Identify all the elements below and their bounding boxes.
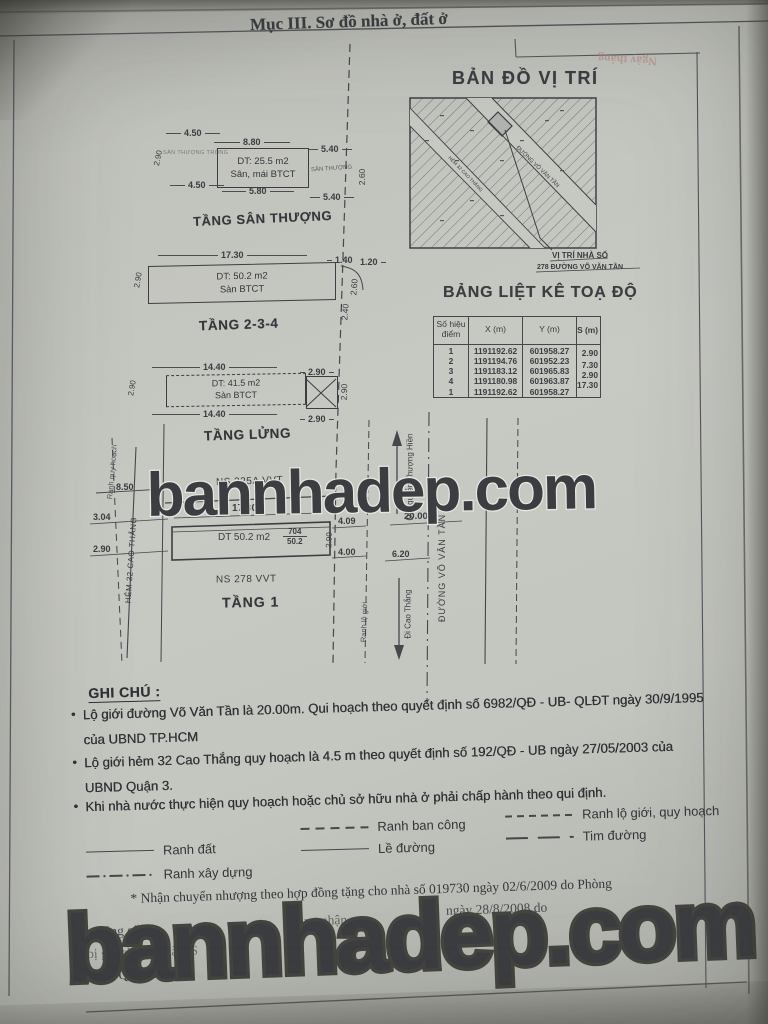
col-point: Số hiệu điểm 1 2 3 4 1 [434,317,468,397]
dim-value: 14.40 [203,362,226,372]
x-value: 1191180.98 [474,376,517,386]
note-1-line-1: Lộ giới đường Võ Văn Tần là 20.00m. Qui … [83,690,704,722]
s-value: 17.30 [577,380,598,390]
street-label: ĐƯỜNG VÕ VĂN TẦN [437,514,447,622]
solid-line-icon [86,849,154,852]
x-value: 1191192.62 [474,346,517,356]
dim-234-top: 17.30 [158,250,307,260]
house-number-top: NS 325A VVT [216,475,284,488]
dim-t1-width: 17.30 [232,503,257,514]
dim-mezz-bottom: 14.40 [152,409,277,419]
mezzanine-box: DT: 41.5 m2 Sàn BTCT [166,373,306,407]
footer-fragment: bị giá chứng nhà QS [87,943,198,962]
tang1-plan [90,412,518,704]
dim-value: 17.30 [221,250,244,260]
note-2-line-2: UBND Quận 3. [85,778,173,795]
scanned-document-page: ĐƯỜNG VÕ VĂN TẦN HẺM 32 CAO THẮNG VỊ TRÍ… [0,0,768,1024]
y-value: 601965.83 [530,366,570,376]
note-bullet: ● [71,710,76,719]
legend-label: Ranh lộ giới, quy hoạch [582,803,720,822]
legend-ranh-dat: Ranh đất [86,841,216,859]
col-y: Y (m) 601958.27 601952.23 601965.83 6019… [522,317,576,397]
point-id: 2 [449,356,454,366]
col-point-header-2: điểm [442,330,461,340]
footer-fragment: ngày 28/8/2008 do [446,900,548,919]
floor-234-box: DT: 50.2 m2 Sàn BTCT [148,262,336,304]
dim-t1-850: 8.50 [116,482,134,492]
mezzanine-material: Sàn BTCT [215,390,257,402]
parcel-number: 704 [288,527,301,536]
dim-value: 5.40 [321,144,339,154]
s-value: 2.90 [582,348,598,358]
x-value: 1191194.76 [474,356,517,366]
legend-label: Lề đường [378,839,435,855]
point-id: 1 [449,387,454,397]
parcel-area: 50.2 [283,536,307,546]
col-x-header: X (m) [485,325,506,335]
dim-value: 14.40 [203,409,226,419]
dash-dot-line-icon [87,873,155,877]
dim-roof-bottom-right: 5.40 [310,192,354,202]
dim-value: 5.80 [249,186,267,196]
legend-label: Tim đường [583,827,647,844]
south-arrow [394,578,404,660]
col-s-header: S (m) [577,326,598,336]
y-value: 601963.87 [530,376,570,386]
house-number-bottom: NS 278 VVT [216,573,277,585]
dim-value: 1.40 [335,255,353,265]
dim-t1-304: 3.04 [93,512,111,522]
dim-value: 2.90 [308,414,326,424]
map-title: BẢN ĐỒ VỊ TRÍ [452,68,599,89]
north-arrow [392,430,402,514]
mezzanine-label: TẦNG LỬNG [204,425,292,443]
footer-fragment: ôn chứng số [73,923,139,941]
y-value: 601958.27 [530,387,570,397]
dim-roof-right: 2.60 [357,169,367,186]
legend-label: Ranh ban công [377,817,466,834]
s-value: 2.90 [582,370,598,380]
col-x: X (m) 1191192.62 1191194.76 1191183.12 1… [468,317,522,397]
footer-note: * Nhận chuyển nhượng theo hợp đồng tặng … [60,863,763,995]
note-bullet: ● [72,758,77,767]
mezzanine-void-box [306,376,338,409]
dim-t1-409: 4.09 [338,516,356,526]
dim-234-r2: 1.20 [360,257,386,267]
dim-roof-top-right: 5.40 [308,144,352,154]
direction-south-label: Đi Cao Thắng [404,589,413,638]
legend-tim-duong: Tim đường [506,827,647,846]
legend-label: Ranh đất [163,841,216,857]
bleedthrough-stamp: Ngày tháng [598,50,658,68]
dim-value: 4.50 [188,180,206,190]
floor-234-area: DT: 50.2 m2 [216,269,267,283]
t1-parcel-fraction: 704 50.2 [283,527,307,546]
coordinate-table: Số hiệu điểm 1 2 3 4 1 X (m) 1191192.62 … [433,316,601,398]
note-1-line-2: của UBND TP.HCM [83,729,198,747]
legend-ranh-ban-cong: Ranh ban công [300,817,466,836]
footer-last-line: UBND Quận 3 cấp. [77,965,184,984]
roof-note-left: SÂN THƯỢNG TRỐNG [163,150,228,156]
coord-table-title: BẢNG LIỆT KÊ TOẠ ĐỘ [443,284,637,302]
footer-fragment: bằng nhận [291,912,347,930]
mezzanine-area: DT: 41.5 m2 [212,378,261,391]
dim-234-r3: 2.60 [348,278,359,295]
notes-title: GHI CHÚ : [88,683,161,703]
legend-le-duong: Lề đường [301,839,435,858]
y-value: 601958.27 [530,346,570,356]
roof-material: Sân, mái BTCT [231,168,296,181]
y-value: 601952.23 [530,356,570,366]
dim-value: 5.40 [323,192,341,202]
dim-mezz-bottom-right: 2.90 [300,414,334,424]
dim-234-r1: 1.40 [327,255,353,265]
notes-section: GHI CHÚ : ● Lộ giới đường Võ Văn Tần là … [58,667,741,816]
dim-value: 8.80 [243,137,261,147]
dim-mezz-right: 2.90 [339,384,350,401]
col-s: S (m) 2.90 7.30 2.90 17.30 [576,317,600,397]
solid-line-icon [301,848,369,851]
dim-mezz-top: 14.40 [152,362,277,372]
t1-area: DT 50.2 m2 [218,532,270,543]
col-y-header: Y (m) [539,325,560,335]
map-caption-line2: 278 ĐƯỜNG VÕ VĂN TẦN [537,261,623,271]
dim-roof-bottom-left: 4.50 [170,180,224,190]
floor-234-material: Sàn BTCT [220,283,264,297]
floor-234-label: TẦNG 2-3-4 [199,316,279,334]
dim-roof-bottom-mid: 5.80 [222,186,294,196]
note-bullet: ● [73,801,78,810]
dim-value: 1.20 [360,257,378,267]
point-id: 1 [449,346,454,356]
dim-t1-290-right: 2.90 [324,532,334,548]
point-id: 4 [449,376,454,386]
s-value: 7.30 [582,360,598,370]
dashed-line-icon [300,826,368,830]
direction-north-label: Đi Nguyễn Thượng Hiền [406,434,415,521]
x-value: 1191192.62 [474,387,517,397]
location-map: ĐƯỜNG VÕ VĂN TẦN HẺM 32 CAO THẮNG VỊ TRÍ… [410,98,640,272]
roof-area: DT: 25.5 m2 [237,155,288,168]
legend-ranh-lo-gioi: Ranh lộ giới, quy hoạch [505,803,719,824]
dim-234-r4: 2.40 [339,303,350,320]
dim-value: 4.50 [184,128,202,138]
floor-1-label: TẦNG 1 [222,594,280,611]
x-value: 1191183.12 [474,366,517,376]
short-dash-line-icon [505,813,573,817]
dim-roof-top-mid: 8.80 [214,137,290,147]
setback-boundary-label: Ranh lộ giới [359,602,369,643]
dim-t1-620: 6.20 [392,549,410,559]
roof-floor-box: DT: 25.5 m2 Sân, mái BTCT [217,148,309,188]
dim-t1-400: 4.00 [338,547,356,557]
dim-t1-290-left: 2.90 [93,544,111,554]
point-id: 3 [449,366,454,376]
long-dash-line-icon [506,835,574,839]
dim-roof-top-left: 4.50 [166,128,220,138]
